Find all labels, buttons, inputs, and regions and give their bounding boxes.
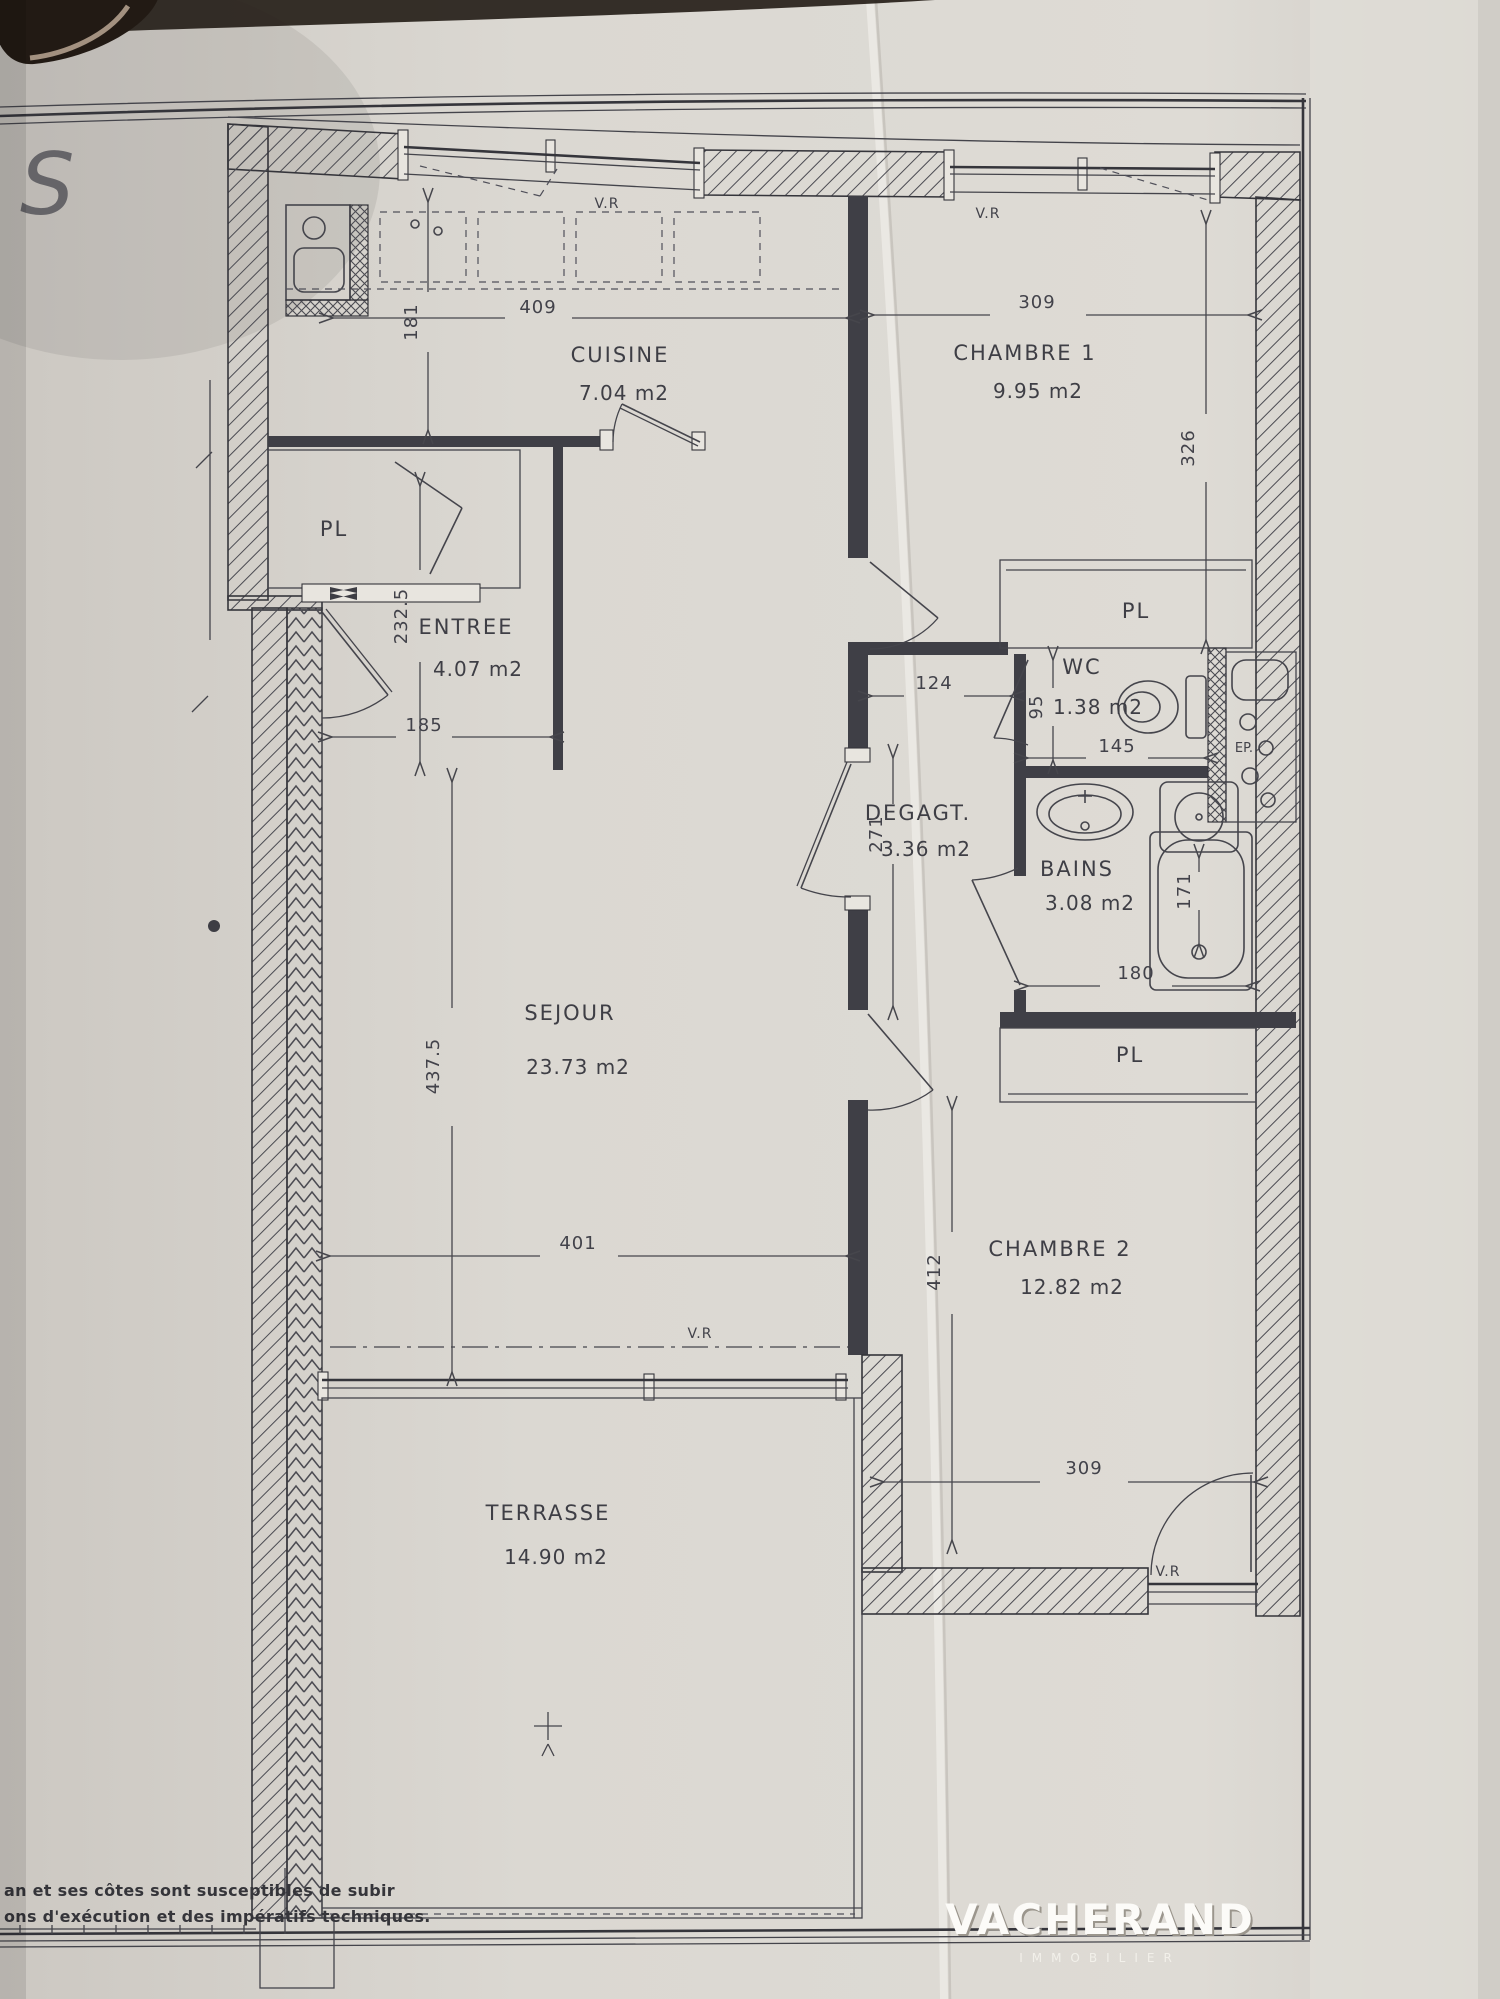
- room-area-chambre1: 9.95 m2: [993, 379, 1083, 403]
- wall-degagt-north: [868, 642, 1008, 655]
- switch-dot: [208, 920, 220, 932]
- wall-central-1: [848, 196, 868, 558]
- dim-entree-width: 185: [405, 715, 442, 736]
- window-label-cuisine: V.R: [595, 196, 620, 212]
- window-label-chambre2: V.R: [1156, 1564, 1181, 1580]
- paper-right-margin: [1310, 0, 1500, 1999]
- room-label-bains: BAINS: [1040, 857, 1114, 881]
- dim-bains-width: 180: [1117, 963, 1154, 984]
- window-label-chambre1: V.R: [976, 206, 1001, 222]
- wall-bains-west-b: [1014, 990, 1026, 1014]
- wall-chambre2-west: [862, 1355, 902, 1572]
- wall-entree-east: [553, 447, 563, 770]
- wall-central-2: [848, 642, 868, 758]
- logo-tagline: IMMOBILIER: [1019, 1951, 1181, 1965]
- wall-central-3: [848, 905, 868, 1010]
- wall-bains-west-a: [1014, 778, 1026, 876]
- dim-degagt-width: 124: [915, 673, 952, 694]
- wall-left-outer: [252, 608, 287, 1918]
- room-label-chambre2: CHAMBRE 2: [988, 1237, 1131, 1261]
- window-label-sejour: V.R: [688, 1326, 713, 1342]
- room-label-wc: WC: [1062, 655, 1101, 679]
- dim-cuisine-depth: 181: [401, 303, 422, 340]
- room-area-sejour: 23.73 m2: [526, 1055, 630, 1079]
- room-label-sejour: SEJOUR: [524, 1001, 615, 1025]
- dim-chambre1-depth: 326: [1178, 429, 1199, 466]
- dim-entree-depth: 232.5: [391, 588, 412, 645]
- wall-bains-south: [1000, 1012, 1296, 1028]
- wall-wc-south: [1014, 766, 1208, 778]
- room-label-terrasse: TERRASSE: [485, 1501, 611, 1525]
- closet-label-chambre1: PL: [1122, 599, 1150, 623]
- dim-tub-length: 171: [1174, 872, 1195, 909]
- wall-left-upper: [228, 124, 268, 600]
- wall-top-right: [1215, 152, 1300, 200]
- floor-plan-drawing: S: [0, 0, 1500, 1999]
- room-area-degagt: 3.36 m2: [881, 837, 971, 861]
- wall-wc-west: [1014, 654, 1026, 766]
- dim-sejour-depth: 437.5: [423, 1038, 444, 1095]
- closet-label-entree: PL: [320, 517, 348, 541]
- wall-top-mid: [700, 150, 950, 197]
- room-area-wc: 1.38 m2: [1053, 695, 1143, 719]
- room-label-degagt: DEGAGT.: [865, 801, 971, 825]
- closet-label-bains: PL: [1116, 1043, 1144, 1067]
- room-area-cuisine: 7.04 m2: [579, 381, 669, 405]
- room-area-bains: 3.08 m2: [1045, 891, 1135, 915]
- wall-central-4: [848, 1100, 868, 1355]
- dim-chambre2-depth: 412: [924, 1253, 945, 1290]
- dim-chambre1-width: 309: [1018, 292, 1055, 313]
- logo-brand: VACHERAND: [945, 1895, 1255, 1944]
- room-area-chambre2: 12.82 m2: [1020, 1275, 1124, 1299]
- dim-wc-width: 145: [1098, 736, 1135, 757]
- room-area-terrasse: 14.90 m2: [504, 1545, 608, 1569]
- floor-plan-photo: S: [0, 0, 1500, 1999]
- wall-right: [1256, 197, 1300, 1616]
- left-edge-vignette: [0, 0, 26, 1999]
- room-label-chambre1: CHAMBRE 1: [953, 341, 1096, 365]
- room-label-cuisine: CUISINE: [571, 343, 670, 367]
- disclaimer-line1: an et ses côtes sont susceptibles de sub…: [4, 1881, 395, 1900]
- dim-cuisine-width: 409: [519, 297, 556, 318]
- right-edge-vignette: [1478, 0, 1500, 1999]
- dim-wc-depth: 95: [1026, 695, 1047, 720]
- wall-chambre2-south: [862, 1568, 1148, 1614]
- room-label-entree: ENTREE: [419, 615, 514, 639]
- disclaimer-line2: ons d'exécution et des impératifs techni…: [4, 1907, 431, 1926]
- dim-chambre2-width: 309: [1065, 1458, 1102, 1479]
- wall-entree-north: [268, 436, 612, 447]
- wall-left-insulation: [287, 608, 322, 1918]
- shaft-label: EP.: [1235, 741, 1253, 756]
- watermark-letter: S: [20, 135, 75, 235]
- dim-sejour-width: 401: [559, 1233, 596, 1254]
- room-area-entree: 4.07 m2: [433, 657, 523, 681]
